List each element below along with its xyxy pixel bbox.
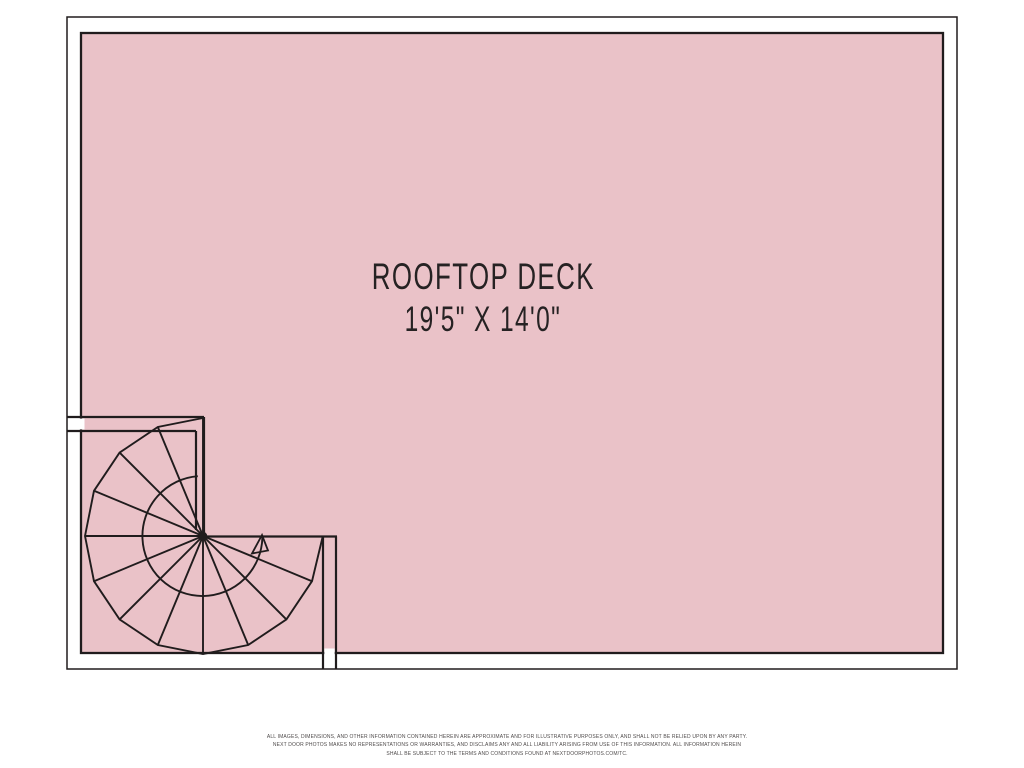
disclaimer-line-1: ALL IMAGES, DIMENSIONS, AND OTHER INFORM… [0, 733, 1014, 741]
room-label: ROOFTOP DECK [0, 258, 966, 295]
deck-area [81, 33, 943, 653]
disclaimer: ALL IMAGES, DIMENSIONS, AND OTHER INFORM… [0, 733, 1014, 758]
room-label-text: ROOFTOP DECK [371, 258, 594, 295]
room-dimensions-text: 19'5" X 14'0" [405, 302, 562, 337]
floor-plan-canvas [0, 0, 1024, 768]
disclaimer-line-3: SHALL BE SUBJECT TO THE TERMS AND CONDIT… [0, 750, 1014, 758]
room-dimensions: 19'5" X 14'0" [0, 302, 966, 337]
disclaimer-line-2: NEXT DOOR PHOTOS MAKES NO REPRESENTATION… [0, 741, 1014, 749]
floor-plan-page: ROOFTOP DECK 19'5" X 14'0" ALL IMAGES, D… [0, 0, 1024, 768]
